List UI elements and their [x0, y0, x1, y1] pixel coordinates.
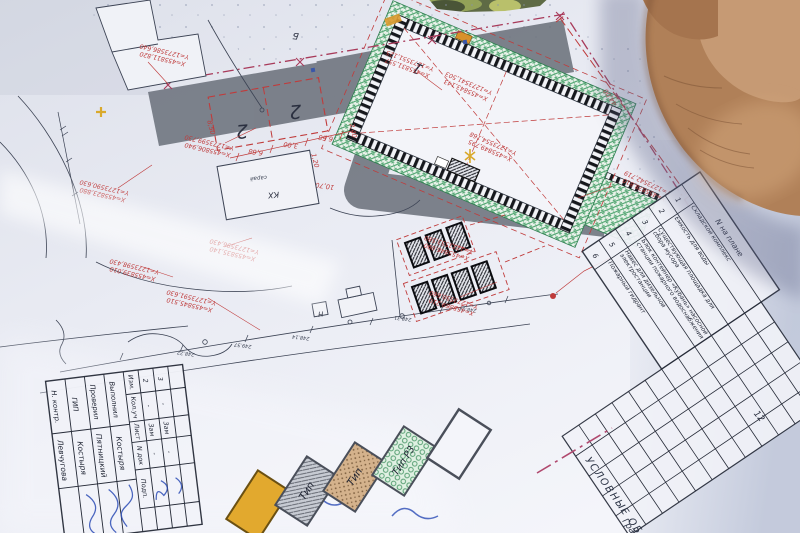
photo-of-site-plan: 1 X=455843,143 Y=1273541,503 X=455849,79…: [0, 0, 800, 533]
parking-label-2a: 2: [235, 119, 249, 142]
shed-kx-label: КХ: [267, 190, 279, 200]
stamp-chg3-b: Зам: [161, 421, 171, 435]
stamp-role-2: ГИП: [70, 397, 80, 412]
parking-label-2b: 2: [288, 100, 302, 123]
stamp-chg2-b: Зам: [147, 423, 157, 437]
scene: 1 X=455843,143 Y=1273541,503 X=455849,79…: [0, 0, 800, 533]
title-block: Изм. Кол.уч Лист N док Подп. 2 - Зам - 3…: [46, 365, 203, 533]
stamp-col-izm: Изм.: [126, 374, 136, 390]
